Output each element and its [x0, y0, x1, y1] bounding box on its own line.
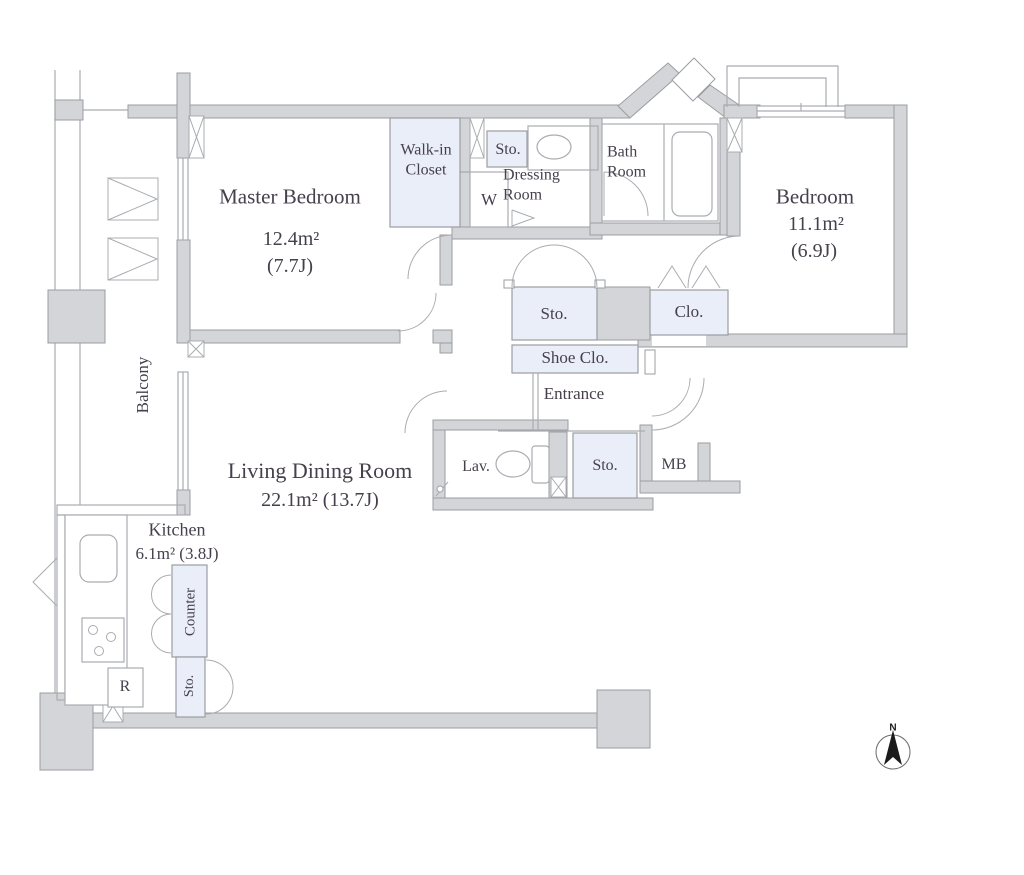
label-kitchen-area: 6.1m² (3.8J)	[135, 543, 218, 565]
label-shoe-closet: Shoe Clo.	[541, 347, 608, 369]
kitchen-sink	[80, 535, 117, 582]
label-kitchen: Kitchen	[149, 518, 206, 541]
label-closet: Clo.	[675, 301, 704, 323]
floorplan-drawing	[0, 0, 1024, 875]
label-balcony: Balcony	[132, 357, 154, 414]
wall-top-left-box	[55, 100, 83, 120]
label-walk-in-closet: Walk-in Closet	[387, 141, 465, 182]
label-storage-kitchen: Sto.	[181, 675, 199, 697]
label-compass-north: N	[889, 723, 896, 736]
label-master-bedroom-tatami: (7.7J)	[267, 254, 313, 280]
label-counter: Counter	[181, 588, 200, 636]
washbasin	[528, 126, 598, 170]
label-lavatory: Lav.	[462, 457, 490, 477]
bedroom-balcony-outline	[727, 66, 838, 107]
north-compass	[876, 730, 910, 769]
label-bath-room: Bath Room	[607, 143, 665, 184]
label-storage-entrance: Sto.	[592, 456, 617, 476]
label-living-dining-area: 22.1m² (13.7J)	[261, 488, 379, 514]
label-bedroom: Bedroom	[776, 184, 854, 211]
floor-plan: Master Bedroom 12.4m² (7.7J) Bedroom 11.…	[0, 0, 1024, 875]
label-refrigerator: R	[120, 677, 131, 697]
toilet	[436, 446, 549, 496]
label-bedroom-tatami: (6.9J)	[791, 239, 837, 265]
label-master-bedroom-area: 12.4m²	[263, 227, 320, 253]
label-washing-machine: W	[481, 189, 497, 211]
label-storage-dressing: Sto.	[495, 140, 520, 160]
label-master-bedroom: Master Bedroom	[210, 184, 370, 211]
kitchen-stove	[82, 618, 124, 662]
label-entrance: Entrance	[544, 383, 604, 405]
label-living-dining: Living Dining Room	[228, 457, 413, 485]
label-storage-hall: Sto.	[541, 303, 568, 325]
label-meter-box: MB	[662, 455, 687, 475]
label-bedroom-area: 11.1m²	[788, 212, 844, 238]
balcony-ac-units	[108, 178, 158, 280]
wall-balcony-pillar	[48, 290, 105, 343]
label-dressing-room: Dressing Room	[503, 166, 597, 207]
